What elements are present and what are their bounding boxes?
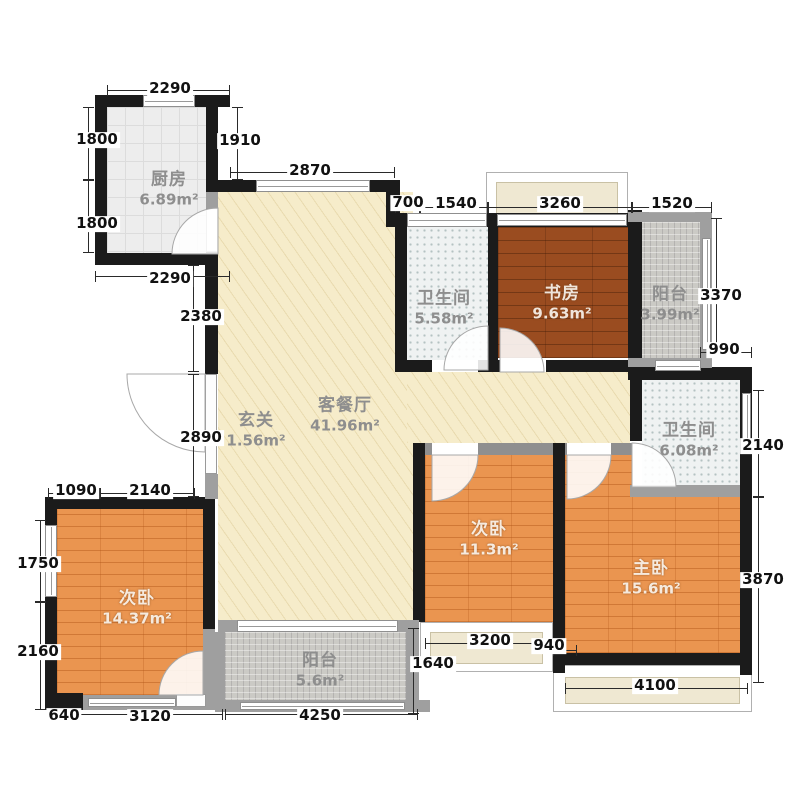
room-name: 阳台 <box>640 284 699 305</box>
room-name: 卫生间 <box>659 420 718 441</box>
room-name: 厨房 <box>139 169 198 190</box>
window-balcony-top-1 <box>702 238 711 290</box>
room-label-kitchen: 厨房 6.89m² <box>139 169 198 208</box>
floor-master-hall <box>565 455 632 653</box>
dim-label-3120: 3120 <box>127 709 173 725</box>
room-name: 卫生间 <box>414 288 473 309</box>
room-name: 阳台 <box>296 650 345 671</box>
room-area: 3.99m² <box>640 306 699 324</box>
dim-label-640: 640 <box>46 708 81 724</box>
dim-label-3870: 3870 <box>740 572 786 588</box>
room-area: 5.6m² <box>296 672 345 690</box>
window-living-balcony <box>237 620 398 632</box>
dim-label-1090: 1090 <box>53 483 99 499</box>
window-bath-top <box>407 213 487 227</box>
wall-kitchen-bottom <box>95 253 218 265</box>
room-area: 6.08m² <box>659 442 718 460</box>
room-area: 6.89m² <box>139 191 198 209</box>
floor-corridor <box>407 372 630 443</box>
room-area: 14.37m² <box>102 610 172 628</box>
room-area: 5.58m² <box>414 310 473 328</box>
room-label-bedroom-left: 次卧 14.37m² <box>102 588 172 627</box>
dim-label-4250: 4250 <box>297 708 343 724</box>
room-name: 主卧 <box>621 558 680 579</box>
room-area: 11.3m² <box>459 541 518 559</box>
dim-label-940: 940 <box>531 638 566 654</box>
room-label-living-dining: 客餐厅 41.96m² <box>310 395 380 434</box>
room-area: 1.56m² <box>226 432 285 450</box>
wall-living-left-lower <box>205 474 218 499</box>
door-gap-study <box>500 360 546 372</box>
door-leaf-entry <box>205 374 217 474</box>
room-area: 41.96m² <box>310 417 380 435</box>
floor-plan: 2290 1800 1800 1910 2870 700 1540 3260 1… <box>0 0 800 800</box>
wall-bath-right-left <box>630 372 642 441</box>
dim-line <box>758 497 759 683</box>
room-name: 客餐厅 <box>310 395 380 416</box>
dim-label-2140-left: 2140 <box>127 483 173 499</box>
room-label-bath-top: 卫生间 5.58m² <box>414 288 473 327</box>
wall-post-left <box>218 620 238 632</box>
dim-label-kitchen-right: 1910 <box>217 133 263 149</box>
wall-master-bottom <box>553 653 752 665</box>
dim-label-kitchen-left-lower: 1800 <box>74 216 120 232</box>
window-mid-wall <box>655 360 701 371</box>
dim-label-700: 700 <box>390 195 425 211</box>
window-study-top <box>497 214 627 226</box>
dim-label-kitchen-top: 2290 <box>147 81 193 97</box>
room-label-bedroom-mid: 次卧 11.3m² <box>459 519 518 558</box>
dim-label-3260: 3260 <box>537 196 583 212</box>
dim-label-2890: 2890 <box>178 430 224 446</box>
dim-label-3370: 3370 <box>698 288 744 304</box>
room-name: 书房 <box>532 283 591 304</box>
dim-label-2140-right: 2140 <box>740 438 786 454</box>
room-label-entry: 玄关 1.56m² <box>226 410 285 449</box>
wall-bedroom-mid-left <box>413 443 425 622</box>
wall-kitchen-left <box>95 95 107 265</box>
dim-label-1640: 1640 <box>410 656 456 672</box>
door-leaf-bedroom-left <box>176 694 206 707</box>
door-leaf-kitchen <box>206 208 218 252</box>
wall-bedroom-left-right <box>203 497 215 629</box>
dim-label-4100: 4100 <box>632 678 678 694</box>
door-gap-bedroom-mid <box>432 443 478 455</box>
dim-label-kitchen-left-upper: 1800 <box>74 132 120 148</box>
room-area: 9.63m² <box>532 305 591 323</box>
wall-bath-right-bottom <box>630 485 740 497</box>
wall-bath-top-left <box>395 227 407 372</box>
dim-label-1540: 1540 <box>433 196 479 212</box>
room-label-bath-right: 卫生间 6.08m² <box>659 420 718 459</box>
wall-bedroom-left-right-lower <box>203 629 215 695</box>
dim-label-2380: 2380 <box>178 309 224 325</box>
room-label-master-bedroom: 主卧 15.6m² <box>621 558 680 597</box>
room-area: 15.6m² <box>621 580 680 598</box>
wall-bath-study-divider <box>488 213 498 360</box>
room-name: 次卧 <box>102 588 172 609</box>
dim-label-1750: 1750 <box>15 556 61 572</box>
dim-label-kitchen-bottom: 2290 <box>147 271 193 287</box>
window-living-top <box>256 180 370 192</box>
window-bedroom-left-bottom <box>88 698 176 707</box>
room-label-study: 书房 9.63m² <box>532 283 591 322</box>
wall-kitchen-right-lower <box>206 250 218 265</box>
wall-post-right <box>398 620 412 632</box>
dim-label-1520: 1520 <box>649 196 695 212</box>
dim-label-living-top: 2870 <box>287 163 333 179</box>
dim-label-3200: 3200 <box>467 633 513 649</box>
dim-label-990: 990 <box>706 342 741 358</box>
room-label-balcony-top: 阳台 3.99m² <box>640 284 699 323</box>
room-name: 玄关 <box>226 410 285 431</box>
dim-label-2160: 2160 <box>15 644 61 660</box>
door-gap-master <box>567 443 611 455</box>
room-label-balcony-bottom: 阳台 5.6m² <box>296 650 345 689</box>
room-name: 次卧 <box>459 519 518 540</box>
door-gap-bath-top <box>432 360 478 372</box>
